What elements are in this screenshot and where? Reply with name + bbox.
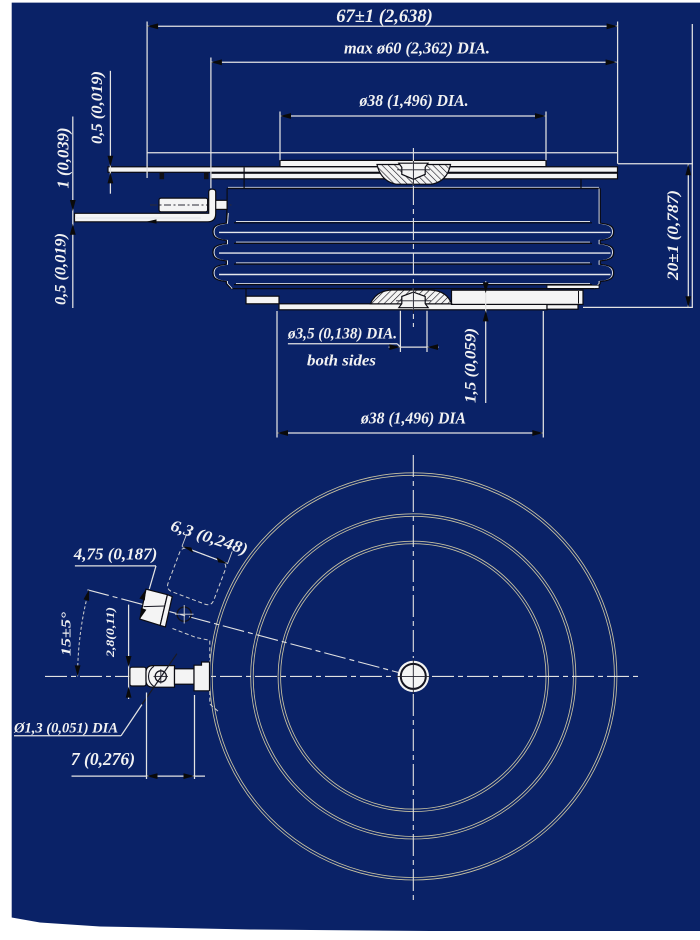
svg-text:1 (0,039): 1 (0,039): [54, 128, 73, 189]
svg-text:0,5 (0,019): 0,5 (0,019): [53, 233, 70, 305]
svg-text:Ø1,3 (0,051) DIA: Ø1,3 (0,051) DIA: [13, 721, 118, 737]
svg-text:max ø60 (2,362) DIA.: max ø60 (2,362) DIA.: [344, 39, 490, 58]
svg-text:ø38 (1,496) DIA: ø38 (1,496) DIA: [360, 409, 466, 428]
svg-text:1,5 (0,059): 1,5 (0,059): [463, 328, 480, 403]
svg-text:2,8(0,11): 2,8(0,11): [105, 607, 117, 658]
svg-text:0,5 (0,019): 0,5 (0,019): [89, 71, 106, 144]
svg-text:ø38 (1,496) DIA.: ø38 (1,496) DIA.: [359, 91, 469, 110]
svg-text:ø3,5 (0,138) DIA.: ø3,5 (0,138) DIA.: [287, 326, 397, 343]
svg-text:67±1 (2,638): 67±1 (2,638): [336, 7, 432, 27]
svg-text:both sides: both sides: [307, 353, 376, 370]
svg-text:20±1 (0,787): 20±1 (0,787): [665, 190, 682, 281]
svg-text:4,75 (0,187): 4,75 (0,187): [73, 545, 158, 564]
svg-text:7 (0,276): 7 (0,276): [71, 749, 135, 769]
svg-text:15±5°: 15±5°: [59, 611, 74, 656]
